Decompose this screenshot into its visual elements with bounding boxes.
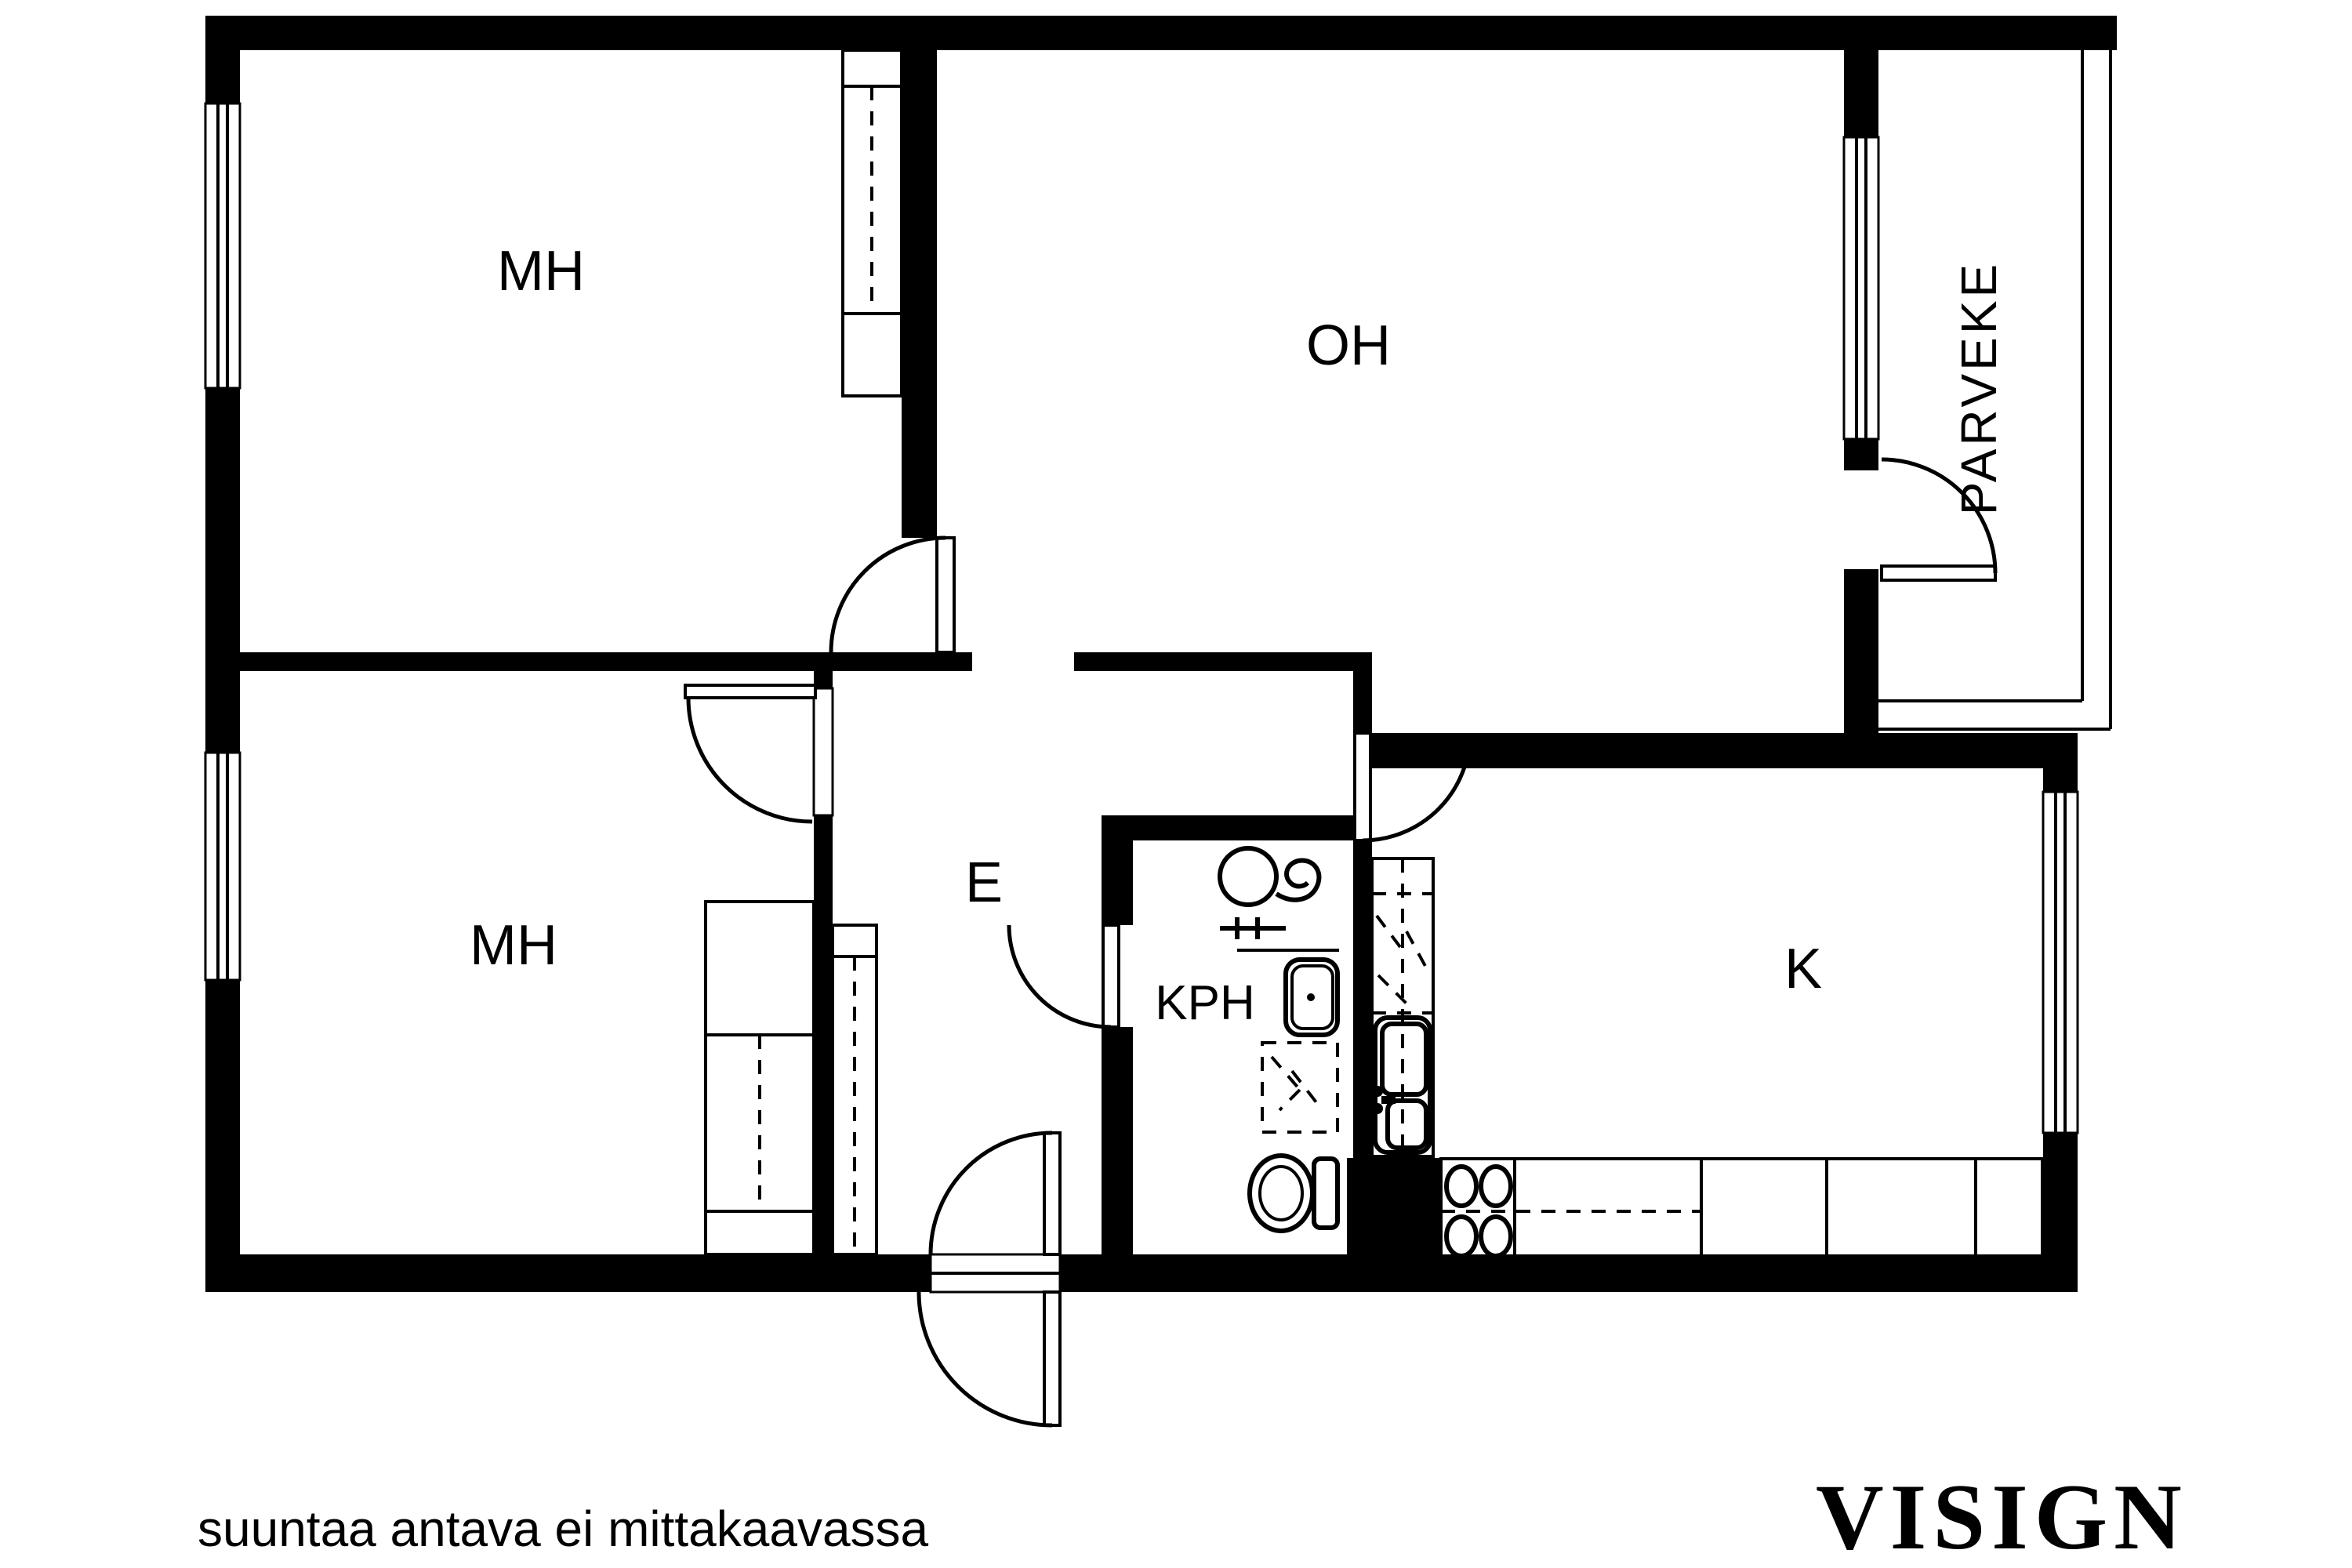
footer-disclaimer: suuntaa antava ei mittakaavassa bbox=[198, 1501, 929, 1557]
livingroom-right-wall-stub bbox=[1844, 439, 1878, 470]
right-wall-lower bbox=[2043, 1133, 2078, 1292]
walls bbox=[205, 16, 2117, 1292]
window-kitchen bbox=[2043, 792, 2078, 1133]
label-bathroom: KPH bbox=[1155, 976, 1254, 1030]
bathroom-left-wall-lower bbox=[1102, 1027, 1133, 1256]
floor-plan-canvas: MH OH MH E KPH K PARVEKE suuntaa antava … bbox=[0, 0, 2352, 1568]
door-entrance-outer bbox=[919, 1292, 1060, 1425]
window-bedroom-bottom bbox=[205, 753, 240, 980]
label-balcony: PARVEKE bbox=[1951, 261, 2007, 515]
label-bedroom-top: MH bbox=[497, 240, 585, 303]
toilet-icon bbox=[1250, 1156, 1338, 1231]
entrance-doorway bbox=[931, 1254, 1060, 1292]
wardrobe-bedroom-bottom bbox=[706, 902, 814, 1254]
left-wall-lower bbox=[205, 980, 240, 1292]
watermark: VISIGN bbox=[1816, 1465, 2188, 1568]
label-living-room: OH bbox=[1306, 314, 1391, 377]
washing-machine-icon bbox=[1220, 848, 1319, 939]
livingroom-right-wall-bottom bbox=[1844, 569, 1878, 733]
bottom-wall-right bbox=[1060, 1254, 2078, 1292]
left-wall-upper bbox=[205, 16, 240, 103]
door-bedroom-bottom bbox=[685, 685, 833, 822]
door-entrance-inner bbox=[931, 1133, 1060, 1254]
washbasin-icon bbox=[1286, 960, 1338, 1035]
kitchen-utility-block bbox=[1347, 1158, 1441, 1262]
left-wall-mid bbox=[205, 388, 240, 753]
shower-icon bbox=[1262, 1043, 1338, 1132]
label-kitchen: K bbox=[1784, 938, 1822, 1000]
mid-wall-left bbox=[240, 652, 972, 671]
room-labels: MH OH MH E KPH K PARVEKE bbox=[470, 240, 2007, 1030]
hall-kitchen-wall-top bbox=[1353, 652, 1372, 733]
closet-hall bbox=[833, 925, 877, 1254]
door-bedroom-top bbox=[831, 538, 954, 652]
bottom-wall-left bbox=[205, 1254, 931, 1292]
label-entry-hall: E bbox=[965, 851, 1003, 914]
kitchen-counter-bottom bbox=[1441, 1159, 2042, 1262]
label-bedroom-bottom: MH bbox=[470, 914, 557, 977]
hall-left-wall bbox=[814, 815, 833, 1256]
mid-wall-right bbox=[1074, 652, 1353, 671]
top-wall bbox=[205, 16, 2117, 50]
livingroom-kitchen-wall bbox=[1372, 733, 2078, 768]
window-bedroom-top bbox=[205, 103, 240, 388]
bathroom-top-wall bbox=[1102, 815, 1353, 840]
kitchen-fixtures bbox=[1347, 858, 2042, 1262]
bedroom-livingroom-wall bbox=[902, 50, 937, 538]
window-living-room bbox=[1844, 137, 1878, 439]
door-bathroom bbox=[1009, 925, 1119, 1027]
bathroom-fixtures bbox=[1220, 848, 1339, 1231]
livingroom-right-wall-top bbox=[1844, 50, 1878, 137]
wardrobe-bedroom-top bbox=[843, 50, 902, 396]
